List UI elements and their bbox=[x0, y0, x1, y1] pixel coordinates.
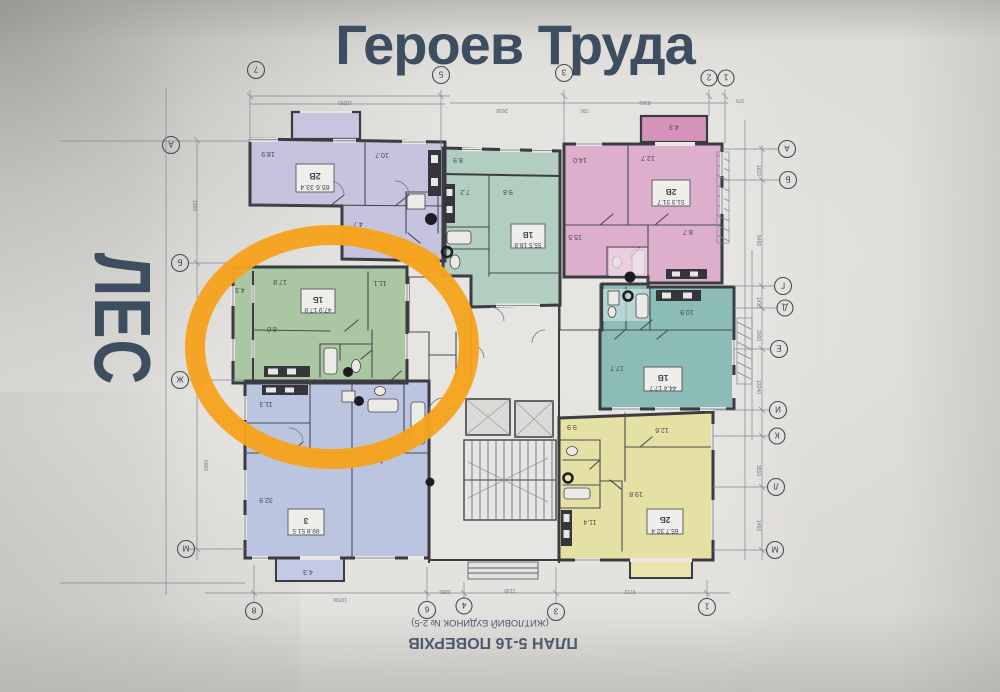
svg-text:8.0: 8.0 bbox=[267, 325, 277, 332]
svg-text:18.9: 18.9 bbox=[261, 150, 275, 157]
svg-text:15.5: 15.5 bbox=[568, 233, 582, 240]
svg-text:8: 8 bbox=[251, 606, 256, 615]
svg-text:Г: Г bbox=[780, 281, 785, 290]
svg-text:М: М bbox=[771, 545, 778, 554]
svg-text:7: 7 bbox=[253, 65, 258, 74]
svg-text:11.4: 11.4 bbox=[583, 518, 596, 525]
svg-text:5460: 5460 bbox=[755, 235, 761, 246]
svg-text:4: 4 bbox=[461, 601, 466, 610]
svg-text:1: 1 bbox=[723, 73, 728, 82]
svg-text:1В: 1В bbox=[658, 373, 669, 383]
svg-text:5: 5 bbox=[438, 70, 443, 79]
svg-text:8360: 8360 bbox=[639, 99, 650, 105]
svg-text:13240: 13240 bbox=[755, 380, 761, 394]
svg-text:8.7: 8.7 bbox=[683, 228, 693, 235]
svg-text:3510: 3510 bbox=[755, 465, 761, 476]
svg-text:10.9: 10.9 bbox=[680, 308, 694, 315]
svg-text:32.9: 32.9 bbox=[259, 496, 273, 503]
svg-text:А: А bbox=[784, 144, 790, 153]
svg-text:Ж: Ж bbox=[176, 375, 184, 384]
svg-text:Б: Б bbox=[785, 175, 790, 184]
svg-text:1450: 1450 bbox=[755, 520, 761, 531]
svg-text:2630: 2630 bbox=[496, 107, 507, 113]
svg-text:11.3: 11.3 bbox=[259, 400, 272, 407]
svg-text:4.3: 4.3 bbox=[669, 123, 679, 130]
svg-text:1430: 1430 bbox=[755, 297, 761, 308]
svg-text:1: 1 bbox=[704, 602, 709, 611]
svg-text:3: 3 bbox=[553, 607, 558, 616]
svg-text:375: 375 bbox=[736, 97, 745, 103]
svg-text:2Б: 2Б bbox=[660, 515, 671, 525]
svg-text:1В: 1В bbox=[523, 230, 533, 239]
svg-text:6710: 6710 bbox=[624, 588, 635, 594]
svg-text:2130: 2130 bbox=[504, 587, 515, 593]
svg-text:9.8: 9.8 bbox=[503, 188, 513, 195]
svg-text:65.7 32.4: 65.7 32.4 bbox=[651, 527, 678, 534]
svg-text:М: М bbox=[182, 544, 189, 553]
svg-text:Е: Е bbox=[776, 344, 781, 353]
svg-text:10250: 10250 bbox=[338, 99, 352, 105]
svg-text:19.8: 19.8 bbox=[629, 490, 643, 497]
svg-text:14.0: 14.0 bbox=[573, 156, 587, 163]
svg-text:4.7: 4.7 bbox=[353, 220, 363, 227]
svg-text:2000: 2000 bbox=[755, 330, 761, 341]
svg-text:Б: Б bbox=[177, 258, 182, 267]
svg-text:65.6 33.4: 65.6 33.4 bbox=[300, 183, 329, 190]
svg-text:1000: 1000 bbox=[191, 200, 197, 211]
svg-text:12.7: 12.7 bbox=[641, 154, 655, 161]
svg-text:700: 700 bbox=[581, 107, 590, 113]
svg-text:3: 3 bbox=[303, 516, 308, 526]
svg-text:44.4 17.7: 44.4 17.7 bbox=[649, 384, 676, 391]
svg-text:4.3: 4.3 bbox=[235, 286, 245, 293]
svg-text:6: 6 bbox=[424, 605, 429, 614]
svg-text:К: К bbox=[774, 431, 779, 440]
svg-text:1610: 1610 bbox=[755, 165, 761, 176]
svg-text:А: А bbox=[168, 140, 174, 149]
svg-text:51.3 31.7: 51.3 31.7 bbox=[657, 198, 684, 205]
svg-text:И: И bbox=[775, 405, 781, 414]
svg-text:Л: Л bbox=[773, 482, 778, 491]
svg-text:10.7: 10.7 bbox=[375, 151, 389, 158]
svg-text:1Б: 1Б bbox=[313, 295, 323, 304]
svg-text:ЛЕС: ЛЕС bbox=[77, 253, 165, 386]
svg-text:12.6: 12.6 bbox=[655, 426, 669, 433]
svg-text:17.7: 17.7 bbox=[610, 364, 624, 371]
svg-text:2В: 2В bbox=[309, 171, 321, 181]
svg-text:7.2: 7.2 bbox=[460, 188, 470, 195]
svg-text:17.8: 17.8 bbox=[273, 278, 287, 285]
svg-text:9.9: 9.9 bbox=[567, 423, 577, 430]
svg-text:55.5 18.8: 55.5 18.8 bbox=[514, 241, 541, 248]
svg-text:4.3: 4.3 bbox=[303, 568, 313, 575]
svg-text:(ЖИТЛОВИЙ БУДИНОК № 2-5): (ЖИТЛОВИЙ БУДИНОК № 2-5) bbox=[411, 617, 549, 629]
svg-text:ПЛАН 5-16 ПОВЕРХІВ: ПЛАН 5-16 ПОВЕРХІВ bbox=[408, 634, 578, 651]
svg-text:89.8 51.5: 89.8 51.5 bbox=[292, 527, 319, 534]
svg-text:Д: Д bbox=[782, 303, 788, 312]
svg-text:2080: 2080 bbox=[439, 588, 450, 594]
svg-text:8.9: 8.9 bbox=[453, 156, 463, 163]
svg-text:2В: 2В bbox=[666, 187, 677, 197]
svg-text:10700: 10700 bbox=[333, 596, 347, 602]
svg-text:6900: 6900 bbox=[202, 460, 208, 471]
svg-text:11.1: 11.1 bbox=[373, 279, 386, 286]
svg-text:2: 2 bbox=[706, 73, 711, 82]
svg-text:3: 3 bbox=[561, 68, 566, 77]
svg-text:47.9 17.8: 47.9 17.8 bbox=[304, 306, 331, 313]
svg-text:Героев Труда: Героев Труда bbox=[335, 13, 696, 76]
